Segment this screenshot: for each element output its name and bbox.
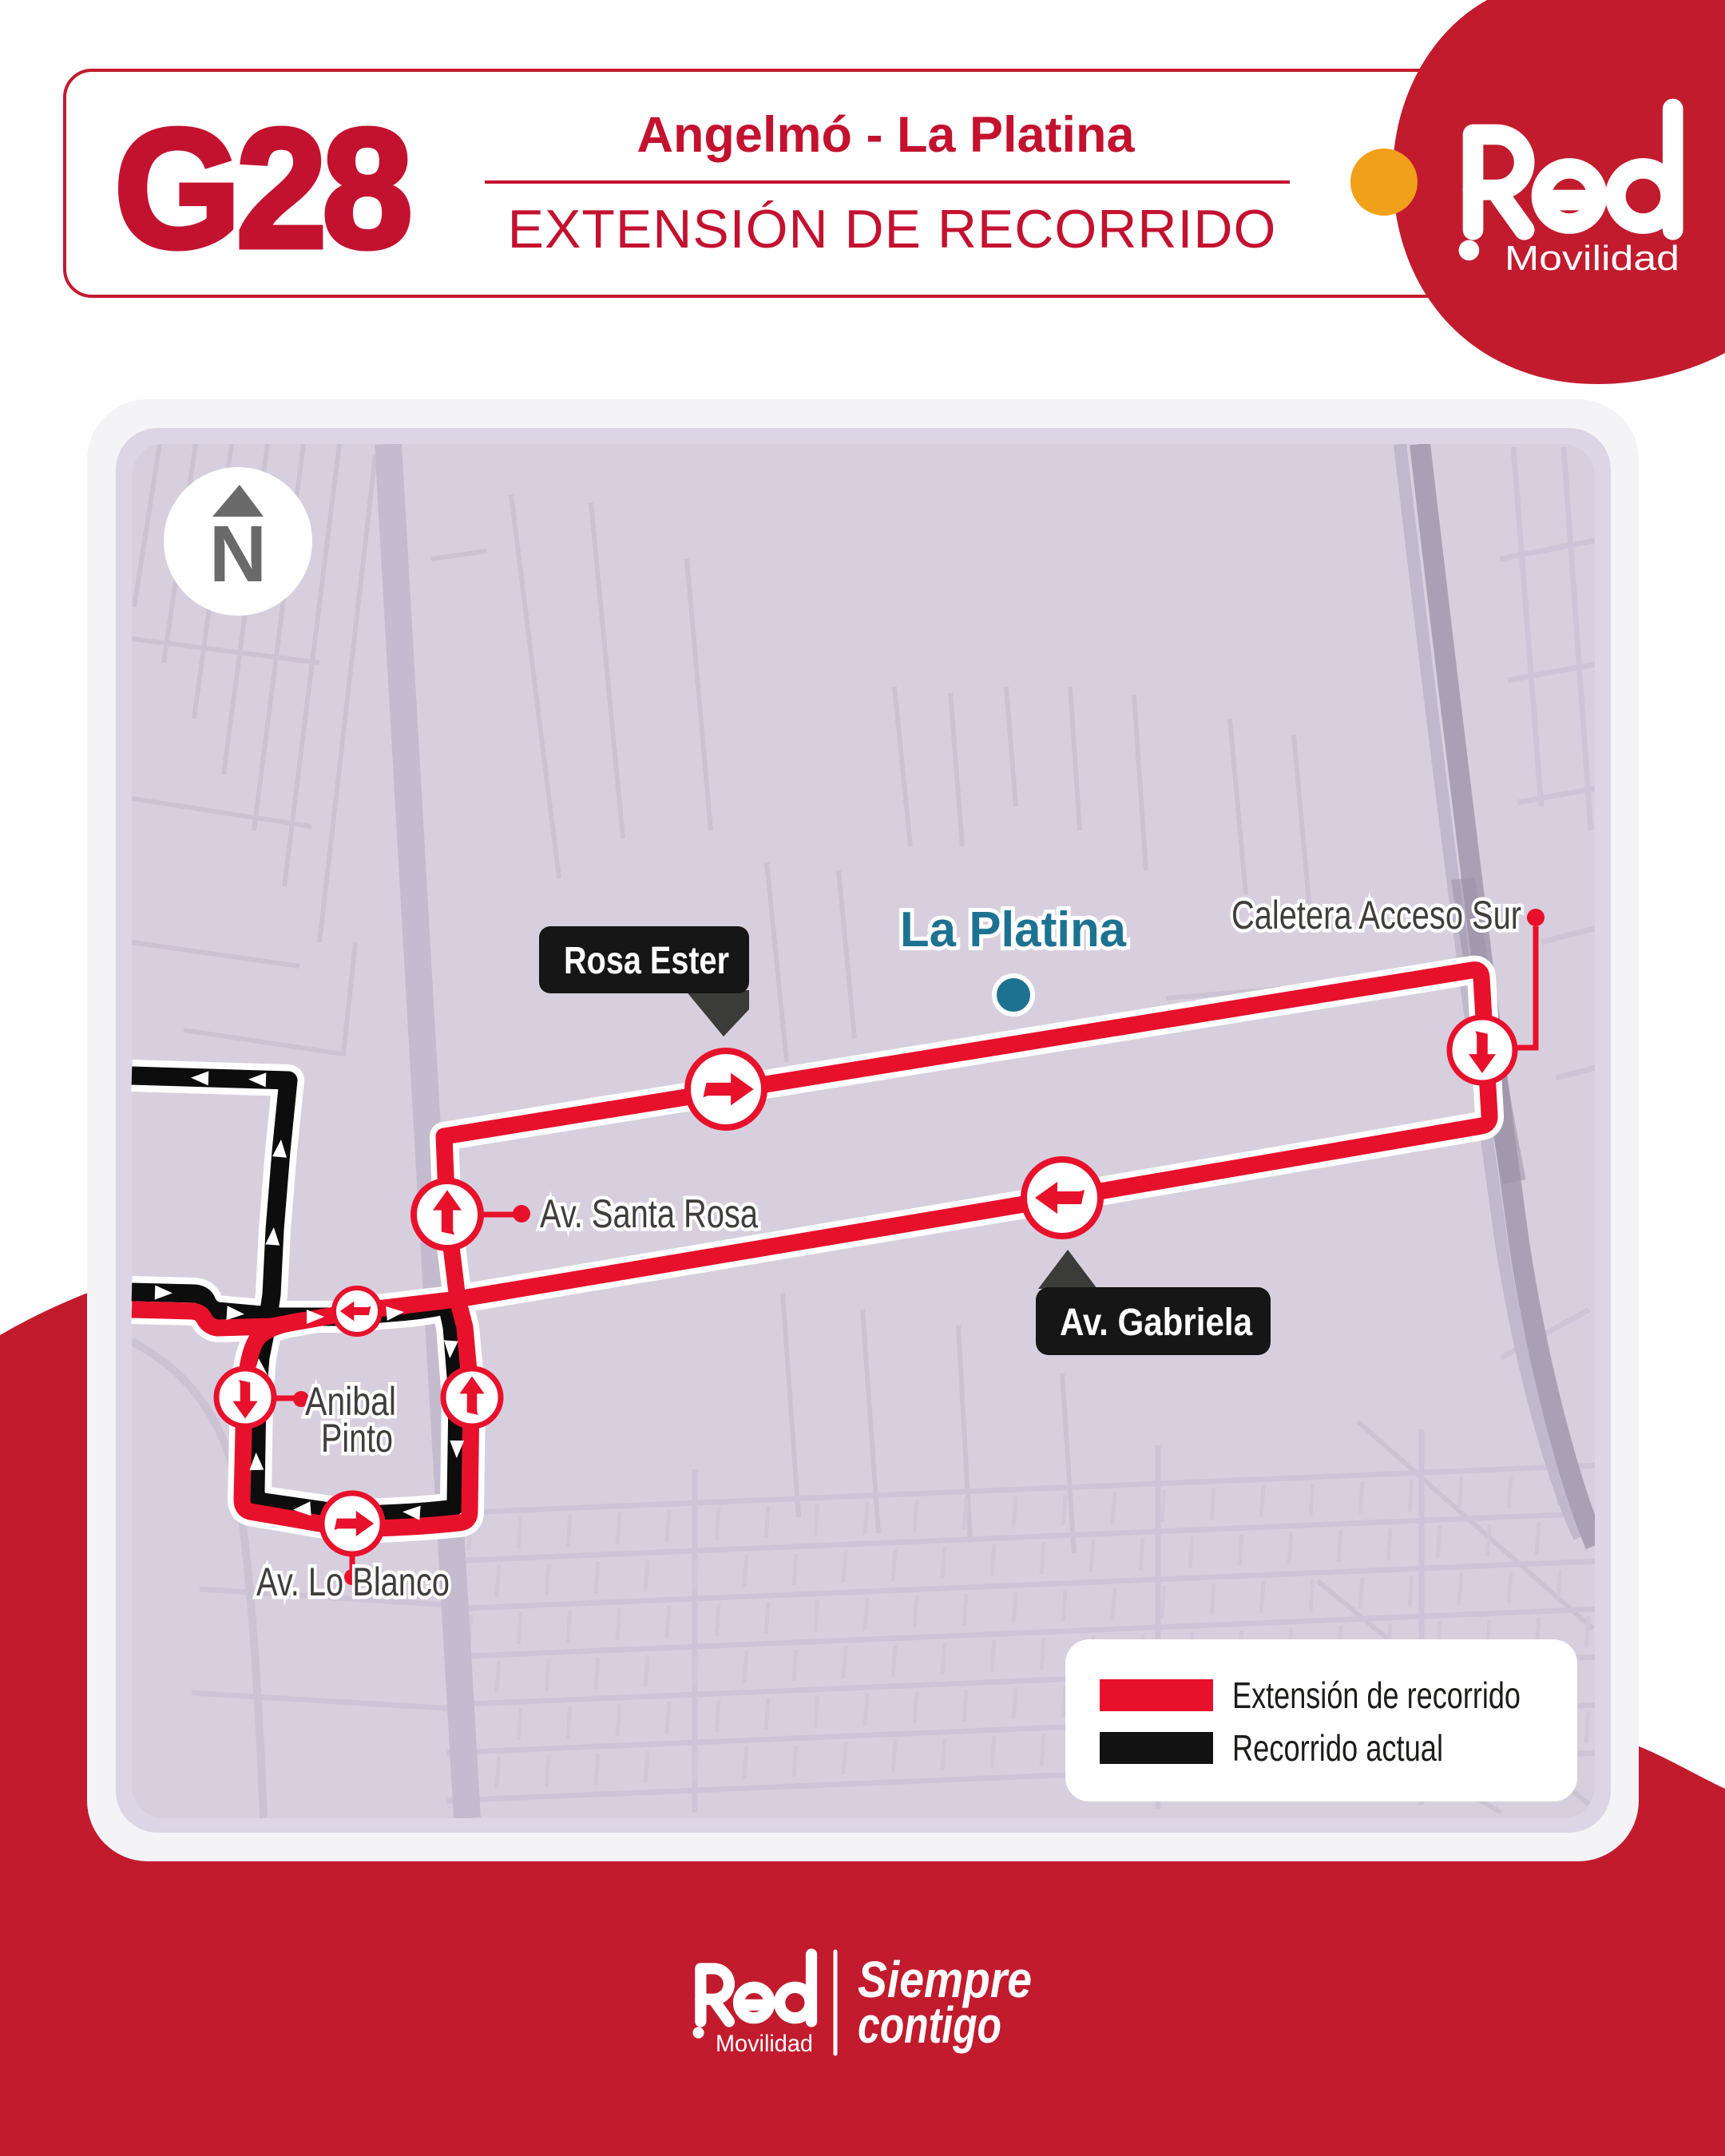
svg-text:Av. Lo Blanco: Av. Lo Blanco: [256, 1560, 450, 1604]
svg-text:N: N: [209, 509, 267, 599]
svg-text:Rosa Ester: Rosa Ester: [564, 940, 729, 982]
svg-text:contigo: contigo: [858, 1996, 1001, 2054]
svg-text:Av. Santa Rosa: Av. Santa Rosa: [540, 1191, 758, 1236]
svg-text:Extensión de recorrido: Extensión de recorrido: [1232, 1674, 1521, 1716]
svg-text:Movilidad: Movilidad: [716, 2031, 813, 2057]
svg-text:Recorrido actual: Recorrido actual: [1232, 1727, 1443, 1769]
svg-text:G28: G28: [114, 93, 408, 283]
svg-text:La Platina: La Platina: [900, 902, 1126, 957]
svg-text:Av. Gabriela: Av. Gabriela: [1060, 1302, 1252, 1344]
svg-text:Caletera Acceso Sur: Caletera Acceso Sur: [1231, 893, 1521, 937]
svg-text:EXTENSIÓN DE RECORRIDO: EXTENSIÓN DE RECORRIDO: [508, 199, 1277, 260]
svg-text:Movilidad: Movilidad: [1505, 239, 1679, 278]
svg-text:Pinto: Pinto: [321, 1416, 393, 1460]
svg-text:Angelmó - La Platina: Angelmó - La Platina: [636, 107, 1135, 163]
